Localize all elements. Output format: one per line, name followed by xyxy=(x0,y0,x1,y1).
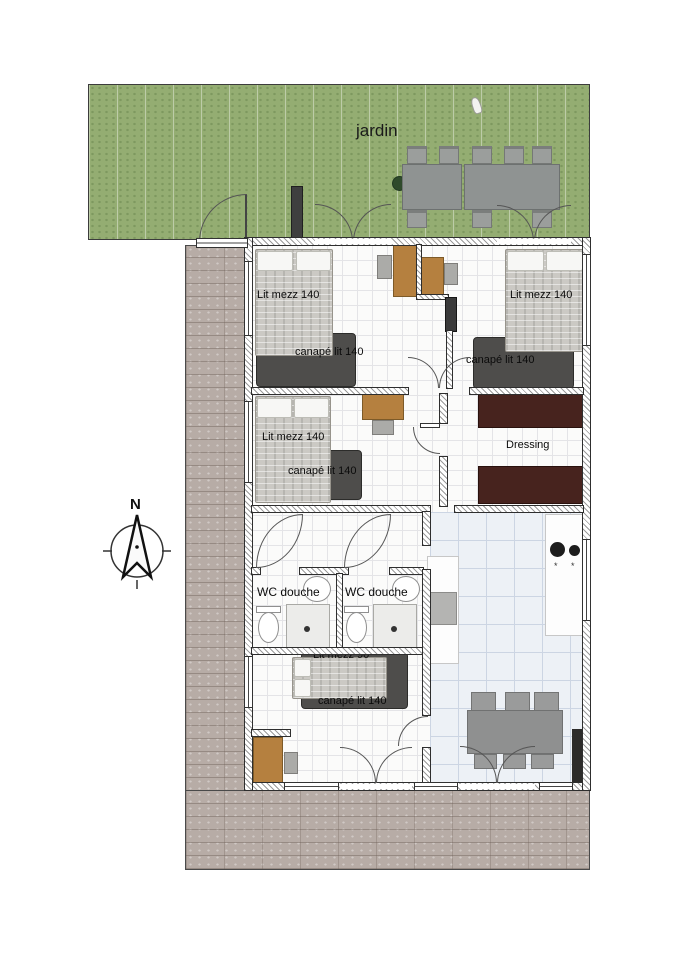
compass-north-label: N xyxy=(130,497,141,512)
desk-chair xyxy=(372,420,394,435)
dressing-label: Dressing xyxy=(506,440,549,451)
pillow xyxy=(546,251,583,271)
interior-wall xyxy=(252,730,290,736)
garden-chair xyxy=(532,146,552,164)
garden-chair xyxy=(472,210,492,228)
desk-chair xyxy=(377,255,392,279)
dining-chair xyxy=(505,692,530,711)
dining-chair xyxy=(471,692,496,711)
pillow xyxy=(294,659,311,677)
garden-chair xyxy=(407,210,427,228)
interior-wall xyxy=(423,570,430,715)
interior-wall xyxy=(417,295,448,299)
window xyxy=(415,783,457,790)
garden-table xyxy=(464,164,560,210)
interior-wall xyxy=(440,394,447,423)
window xyxy=(245,402,252,482)
wardrobe xyxy=(478,393,586,428)
sofa-label: canapé lit 140 xyxy=(318,696,387,707)
desk-chair xyxy=(444,263,458,285)
kitchen-counter xyxy=(545,514,583,636)
interior-wall xyxy=(417,245,421,299)
window xyxy=(583,255,590,345)
shower-drain xyxy=(304,626,310,632)
tap-glyph: * xyxy=(554,562,558,571)
kitchen-appliance xyxy=(429,592,457,625)
bed-label: Lit mezz 140 xyxy=(262,432,324,443)
garden-label: jardin xyxy=(356,122,398,139)
wardrobe xyxy=(478,466,586,504)
pillow xyxy=(294,398,329,418)
pillow xyxy=(507,251,544,271)
desk xyxy=(362,392,404,420)
interior-wall xyxy=(440,457,447,506)
garden-chimney xyxy=(291,186,303,240)
window xyxy=(197,239,247,247)
window xyxy=(540,783,572,790)
window xyxy=(285,783,338,790)
desk xyxy=(419,257,444,295)
desk-chair xyxy=(284,752,298,774)
bed-label: Lit mezz 140 xyxy=(510,290,572,301)
sink-basin xyxy=(569,545,580,556)
interior-wall xyxy=(423,748,430,783)
garden-chair xyxy=(407,146,427,164)
bathroom-label: WC douche xyxy=(257,586,320,598)
wall-flue xyxy=(446,298,456,331)
desk xyxy=(393,245,418,297)
sofa-label: canapé lit 140 xyxy=(466,355,535,366)
garden-table xyxy=(402,164,462,210)
toilet xyxy=(258,612,279,643)
interior-wall xyxy=(337,574,342,648)
dining-table xyxy=(467,710,563,754)
dining-chair xyxy=(534,692,559,711)
window xyxy=(245,657,252,707)
bathroom-label: WC douche xyxy=(345,586,408,598)
terrace-left xyxy=(185,245,245,870)
garden-chair xyxy=(504,146,524,164)
interior-wall xyxy=(252,506,430,512)
desk xyxy=(253,737,283,787)
pillow xyxy=(257,251,293,271)
garden-chair xyxy=(472,146,492,164)
pillow xyxy=(296,251,331,271)
interior-wall xyxy=(252,648,423,654)
terrace-bottom xyxy=(185,790,590,870)
door-opening xyxy=(460,784,535,789)
toilet xyxy=(346,612,367,643)
interior-wall xyxy=(252,388,408,394)
interior-wall xyxy=(470,388,583,394)
shower-drain xyxy=(391,626,397,632)
interior-wall xyxy=(390,568,423,574)
pillow xyxy=(294,679,311,697)
door-opening xyxy=(340,784,412,789)
tap-glyph: * xyxy=(571,562,575,571)
interior-wall xyxy=(423,512,430,545)
window xyxy=(245,262,252,335)
sofa-label: canapé lit 140 xyxy=(295,347,364,358)
door-opening xyxy=(497,239,571,244)
pillow xyxy=(257,398,292,418)
interior-wall xyxy=(455,506,583,512)
garden-chair xyxy=(439,146,459,164)
interior-wall xyxy=(252,568,260,574)
sink-basin xyxy=(550,542,565,557)
door-opening xyxy=(315,239,392,244)
window xyxy=(583,540,590,620)
sofa-label: canapé lit 140 xyxy=(288,466,357,477)
floor-plan: jardin Lit mezz 140 canapé lit 140 Lit m… xyxy=(0,0,679,960)
bed-label: Lit mezz 140 xyxy=(257,290,319,301)
